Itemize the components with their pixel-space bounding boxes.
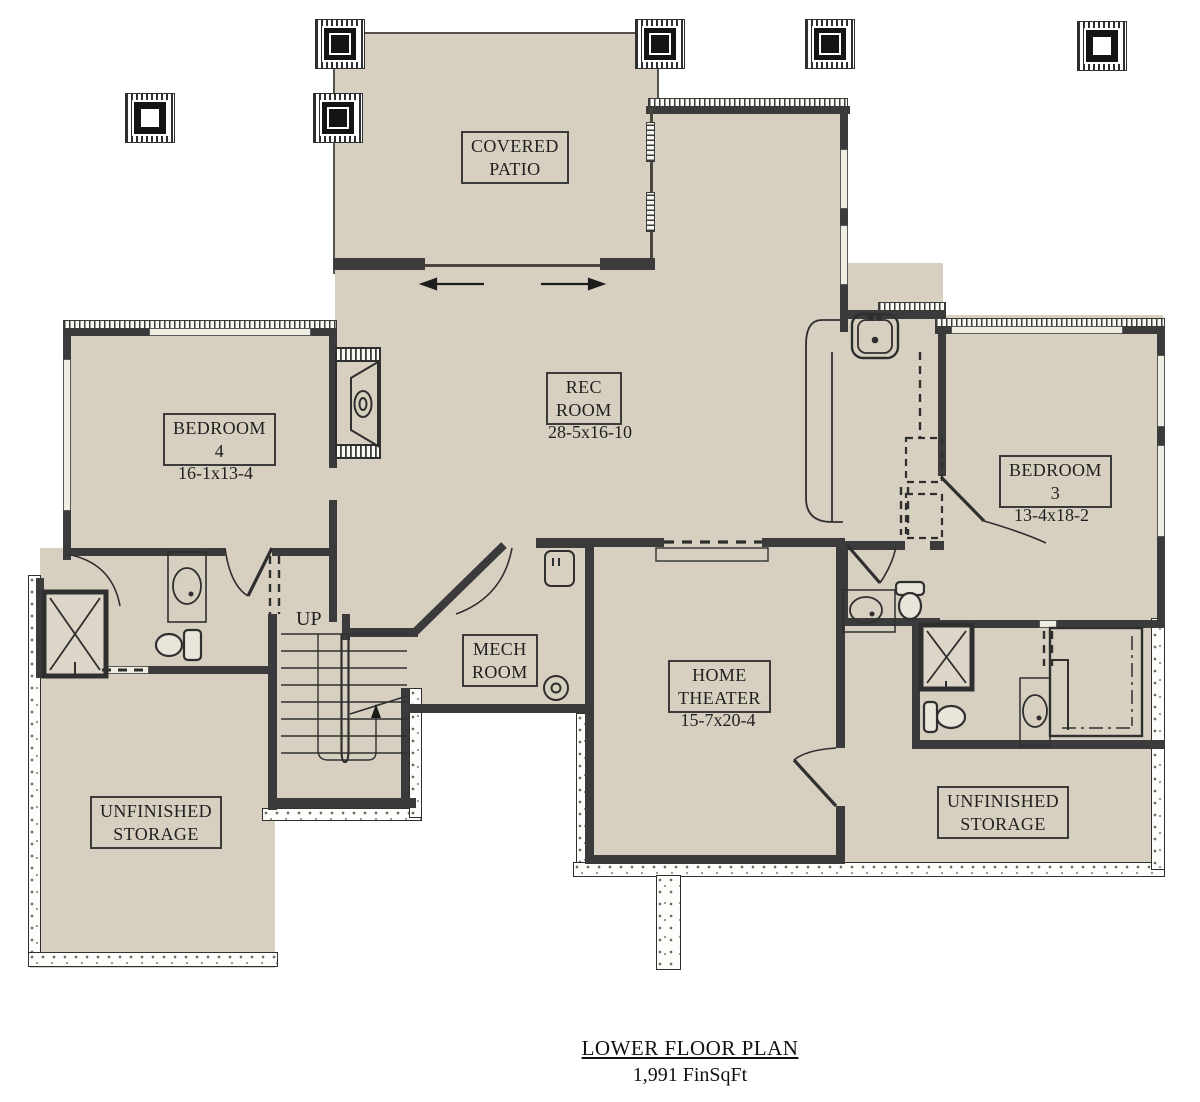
- room-label-rec-room: RECROOM: [546, 372, 622, 425]
- patio-pillar: [806, 20, 854, 68]
- sink-fixture: [843, 590, 895, 632]
- room-label-covered-patio: COVEREDPATIO: [461, 131, 569, 184]
- patio-pillar: [636, 20, 684, 68]
- plan-footer: LOWER FLOOR PLAN 1,991 FinSqFt: [440, 1036, 940, 1087]
- toilet-fixture: [156, 630, 201, 660]
- plan-area: 1,991 FinSqFt: [440, 1064, 940, 1087]
- mech-equipment-fixture: [544, 551, 574, 700]
- toilet-fixture: [896, 582, 924, 619]
- stairs-up-label: UP: [296, 608, 322, 631]
- patio-pillar: [126, 94, 174, 142]
- room-label-mech-room: MECHROOM: [462, 634, 538, 687]
- stairs: [281, 634, 407, 762]
- room-dims-rec-room: 28-5x16-10: [535, 422, 645, 443]
- room-dims-bedroom4: 16-1x13-4: [163, 463, 268, 484]
- floor-plan: COVEREDPATIO RECROOM 28-5x16-10 BEDROOM4…: [0, 0, 1200, 1102]
- soffit: [656, 548, 768, 561]
- sink-fixture: [168, 552, 206, 622]
- angled-wall: [413, 545, 504, 634]
- plan-title: LOWER FLOOR PLAN: [440, 1036, 940, 1061]
- shower-fixture: [44, 592, 106, 676]
- plan-detail-layer: [0, 0, 1200, 1102]
- toilet-fixture: [924, 702, 965, 732]
- patio-pillar: [314, 94, 362, 142]
- patio-pillar: [1078, 22, 1126, 70]
- door-swing: [66, 477, 1046, 806]
- sink-fixture: [1020, 678, 1050, 746]
- room-label-home-theater: HOMETHEATER: [668, 660, 771, 713]
- patio-pillar: [316, 20, 364, 68]
- room-dims-home-theater: 15-7x20-4: [668, 710, 768, 731]
- fireplace-fixture: [336, 348, 380, 458]
- closet: [1050, 628, 1142, 736]
- room-label-storage-right: UNFINISHEDSTORAGE: [937, 786, 1069, 839]
- sliding-door-arrows-icon: [422, 279, 603, 289]
- room-label-storage-left: UNFINISHEDSTORAGE: [90, 796, 222, 849]
- wetbar-counter: [806, 314, 942, 538]
- cased-opening: [102, 487, 1052, 670]
- room-dims-bedroom3: 13-4x18-2: [999, 505, 1104, 526]
- shower-fixture: [921, 625, 972, 690]
- room-label-bedroom4: BEDROOM4: [163, 413, 276, 466]
- room-label-bedroom3: BEDROOM3: [999, 455, 1112, 508]
